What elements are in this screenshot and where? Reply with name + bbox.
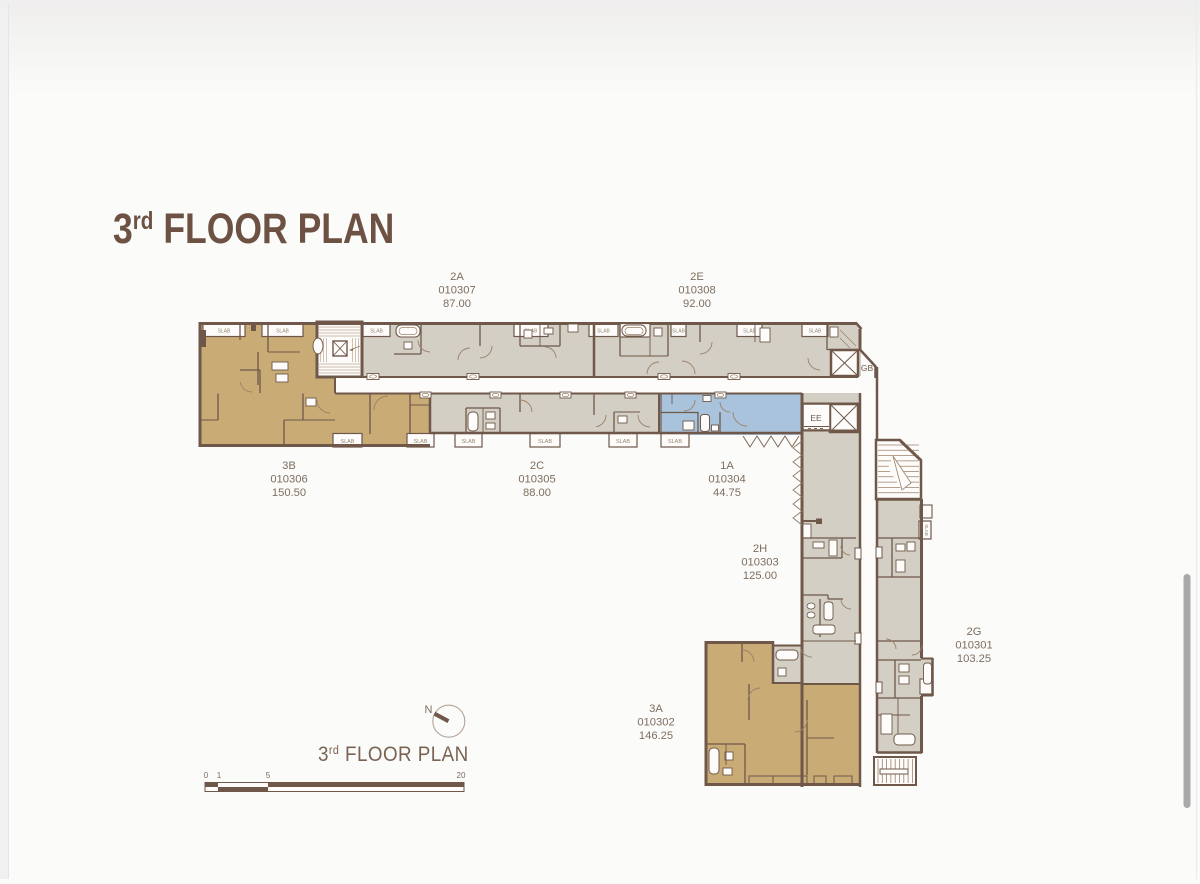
svg-text:010304: 010304 [708, 474, 745, 486]
svg-text:SLAB: SLAB [218, 329, 231, 335]
svg-text:N: N [425, 704, 433, 716]
svg-text:SLAB: SLAB [743, 329, 756, 335]
svg-text:010307: 010307 [438, 285, 475, 297]
svg-text:150.50: 150.50 [272, 487, 306, 499]
svg-text:010308: 010308 [678, 285, 715, 297]
svg-text:146.25: 146.25 [639, 730, 673, 742]
svg-text:SLAB: SLAB [809, 329, 822, 335]
svg-text:44.75: 44.75 [713, 487, 741, 499]
svg-text:2H: 2H [753, 543, 767, 555]
svg-text:SLAB: SLAB [597, 329, 610, 335]
svg-text:0: 0 [204, 771, 209, 780]
svg-text:103.25: 103.25 [957, 653, 991, 665]
svg-text:2A: 2A [450, 271, 464, 283]
svg-text:GB: GB [861, 363, 874, 373]
svg-text:EE: EE [810, 413, 822, 423]
svg-text:3B: 3B [282, 460, 296, 472]
svg-text:SLAB: SLAB [668, 439, 682, 445]
svg-text:010302: 010302 [637, 717, 674, 729]
svg-text:88.00: 88.00 [523, 487, 551, 499]
svg-text:125.00: 125.00 [743, 570, 777, 582]
svg-text:SLAB: SLAB [538, 439, 552, 445]
svg-text:SLAB: SLAB [370, 329, 383, 335]
svg-text:2G: 2G [967, 626, 982, 638]
svg-text:2C: 2C [530, 460, 544, 472]
svg-text:010303: 010303 [741, 557, 778, 569]
svg-text:1: 1 [217, 771, 222, 780]
svg-text:1A: 1A [720, 460, 734, 472]
svg-text:010306: 010306 [270, 474, 307, 486]
svg-text:20: 20 [457, 771, 466, 780]
svg-text:010305: 010305 [518, 474, 555, 486]
svg-text:3rd FLOOR PLAN: 3rd FLOOR PLAN [318, 743, 469, 766]
svg-text:2E: 2E [690, 271, 704, 283]
svg-text:SLAB: SLAB [672, 329, 685, 335]
svg-text:SLAB: SLAB [461, 439, 475, 445]
svg-text:5: 5 [266, 771, 271, 780]
svg-text:92.00: 92.00 [683, 298, 711, 310]
svg-text:87.00: 87.00 [443, 298, 471, 310]
svg-text:SLAB: SLAB [616, 439, 630, 445]
svg-text:SLAB: SLAB [276, 329, 289, 335]
svg-text:010301: 010301 [955, 640, 992, 652]
svg-text:3rd FLOOR PLAN: 3rd FLOOR PLAN [113, 205, 394, 253]
svg-text:3A: 3A [649, 703, 663, 715]
svg-text:SLAB: SLAB [924, 524, 929, 536]
